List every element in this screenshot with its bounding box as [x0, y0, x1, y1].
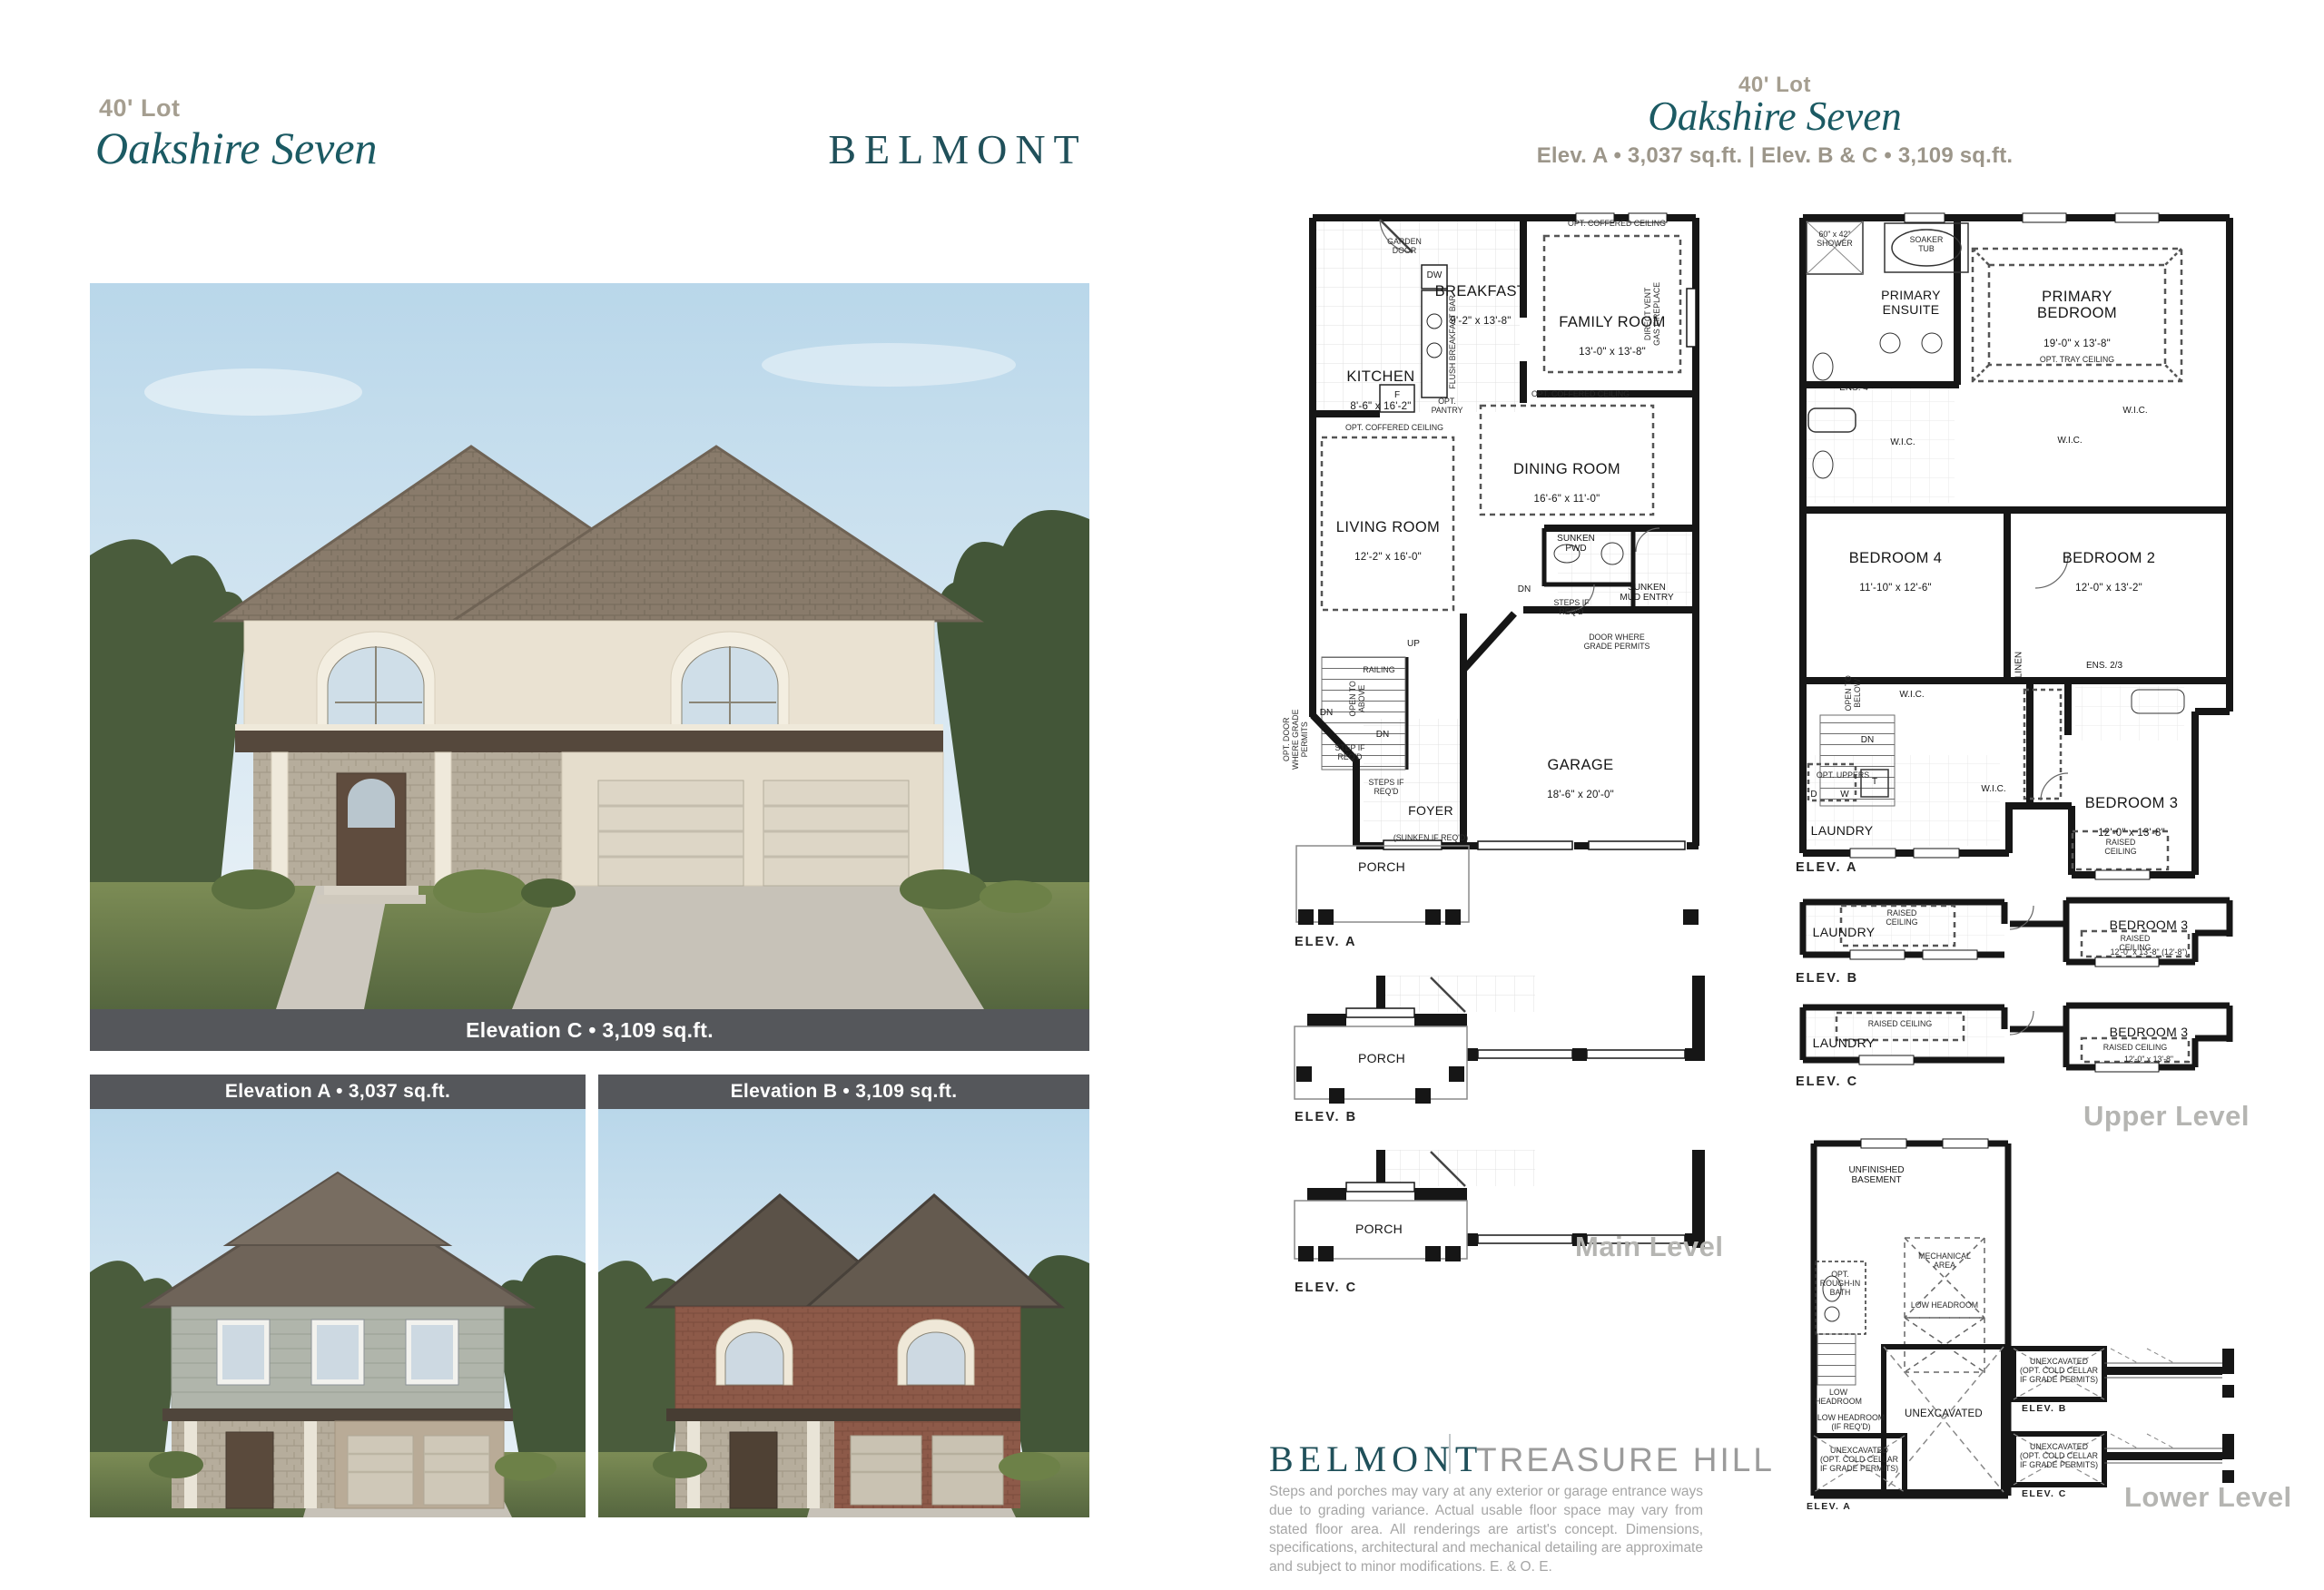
main-elev-b-label: ELEV. B [1295, 1110, 1357, 1124]
elevation-c-rendering: Elevation C • 3,109 sq.ft. [90, 283, 1089, 1051]
wic-label-4: W.I.C. [1885, 690, 1939, 700]
dn-label-1: DN [1512, 584, 1536, 594]
disclaimer-text: Steps and porches may vary at any exteri… [1269, 1483, 1703, 1577]
bedroom3-name: BEDROOM 3 [2059, 795, 2204, 811]
bedroom4-name: BEDROOM 4 [1827, 550, 1964, 566]
upper-elev-c-label: ELEV. C [1796, 1075, 1858, 1089]
open-above-label: OPEN TO ABOVE [1349, 672, 1367, 726]
room-bedroom-2: BEDROOM 2 12'-0" x 13'-2" [2036, 534, 2181, 611]
elevation-c-illustration [90, 283, 1089, 1009]
coffered-living-label: OPT. COFFERED CEILING [1335, 424, 1453, 433]
main-level-elev-b-variant: PORCH ELEV. B [1285, 976, 1744, 1125]
wic-label-2: W.I.C. [2043, 436, 2097, 446]
lower-elev-a-label: ELEV. A [1807, 1501, 1851, 1512]
sunken-mud-label: SUNKEN MUD ENTRY [1601, 583, 1692, 603]
upper-elev-b-label: ELEV. B [1796, 971, 1858, 986]
bedroom3-c-name: BEDROOM 3 [2068, 1026, 2230, 1040]
fridge-label: F [1380, 390, 1414, 400]
elevation-specs: Elev. A • 3,037 sq.ft. | Elev. B & C • 3… [1525, 143, 2024, 169]
bedroom3-c-dims: 12'-0" x 13'-8" [2068, 1055, 2230, 1065]
wic-label-5: W.I.C. [1966, 784, 2021, 794]
elevation-b-illustration [598, 1109, 1089, 1517]
raised-ceiling-b2: RAISED CEILING [2102, 935, 2168, 953]
porch-label-a: PORCH [1338, 860, 1425, 875]
model-name-left: Oakshire Seven [95, 122, 378, 174]
upper-level-elev-c-variant: RAISED CEILING LAUNDRY BEDROOM 3 12'-0" … [1796, 998, 2238, 1089]
hero-caption: Elevation C • 3,109 sq.ft. [90, 1009, 1089, 1051]
kitchen-dims: 8'-6" x 16'-2" [1326, 401, 1435, 413]
lower-elev-b-label: ELEV. B [2022, 1403, 2067, 1414]
model-name-right: Oakshire Seven [1593, 93, 1956, 140]
porch-label-b: PORCH [1338, 1052, 1425, 1066]
lot-size-label-left: 40' Lot [99, 94, 180, 123]
footer-treasurehill-logo: TREASURE HILL [1476, 1441, 1775, 1479]
foyer-note: (SUNKEN IF REQ'D) [1385, 834, 1476, 843]
sunken-pwd-label: SUNKEN PWD [1547, 534, 1605, 554]
footer-logo-divider [1449, 1434, 1451, 1474]
upper-elev-a-label: ELEV. A [1796, 860, 1858, 875]
main-level-elev-c-variant: PORCH ELEV. C [1285, 1150, 1744, 1295]
foyer-name: FOYER [1385, 804, 1476, 819]
ens23-label: ENS. 2/3 [2068, 661, 2141, 671]
cold-cellar-b-label: UNEXCAVATED (OPT. COLD CELLAR IF GRADE P… [2016, 1358, 2102, 1385]
footer-belmont-logo: BELMONT [1269, 1438, 1482, 1480]
main-elev-a-label: ELEV. A [1295, 935, 1357, 949]
laundry-label-c: LAUNDRY [1803, 1036, 1885, 1051]
low-headroom-label-2: LOW HEADROOM [1807, 1389, 1870, 1407]
raised-ceiling-a: RAISED CEILING [2084, 839, 2157, 857]
linen-label: LINEN [2014, 643, 2024, 687]
breakfast-name: BREAKFAST [1426, 283, 1535, 299]
lower-level-elev-b-variant: UNEXCAVATED (OPT. COLD CELLAR IF GRADE P… [2011, 1345, 2238, 1418]
step-if-reqd-label: STEP IF REQ'D [1324, 744, 1376, 762]
living-dims: 12'-2" x 16'-0" [1320, 552, 1456, 564]
porch-label-c: PORCH [1335, 1222, 1423, 1237]
living-name: LIVING ROOM [1320, 519, 1456, 535]
lower-elev-c-label: ELEV. C [2022, 1488, 2067, 1499]
primary-bedroom-name: PRIMARY BEDROOM [2000, 289, 2154, 322]
upper-level-plan: 60" x 42" SHOWER SOAKER TUB PRIMARY ENSU… [1796, 211, 2238, 882]
dn-label-3: DN [1371, 730, 1394, 740]
upper-dn-label: DN [1856, 735, 1879, 745]
breakfast-dims: 9'-2" x 13'-8" [1426, 316, 1535, 328]
main-elev-c-label: ELEV. C [1295, 1281, 1357, 1295]
thumb-a-caption: Elevation A • 3,037 sq.ft. [90, 1075, 586, 1109]
coffered-dining-label: OPT. COFFERED CEILING [1526, 390, 1635, 399]
room-garage: GARAGE 18'-6" x 20'-0" [1508, 741, 1653, 818]
door-grade-label: DOOR WHERE GRADE PERMITS [1571, 633, 1662, 652]
low-headroom-label-1: LOW HEADROOM [1908, 1301, 1981, 1310]
upper-level-elev-b-variant: RAISED CEILING LAUNDRY BEDROOM 3 12'-0" … [1796, 897, 2238, 987]
room-dining: DINING ROOM 16'-6" x 11'-0" [1494, 445, 1640, 522]
dryer-label: D [1805, 790, 1823, 800]
main-elev-b-walls [1285, 976, 1744, 1125]
elevation-b-rendering: Elevation B • 3,109 sq.ft. [598, 1075, 1089, 1517]
low-headroom-req-label: LOW HEADROOM (IF REQ'D) [1816, 1414, 1886, 1432]
unexcavated-main-label: UNEXCAVATED [1894, 1408, 1994, 1420]
dn-label-2: DN [1315, 708, 1338, 718]
open-below-label: OPEN TO BELOW [1845, 666, 1863, 721]
bedroom2-name: BEDROOM 2 [2036, 550, 2181, 566]
room-primary-bedroom: PRIMARY BEDROOM 19'-0" x 13'-8" [2000, 272, 2154, 367]
room-breakfast: BREAKFAST 9'-2" x 13'-8" [1426, 267, 1535, 344]
garage-dims: 18'-6" x 20'-0" [1508, 790, 1653, 801]
opt-pantry-label: OPT. PANTRY [1420, 397, 1474, 416]
garden-door-label: GARDEN DOOR [1373, 238, 1436, 256]
dining-dims: 16'-6" x 11'-0" [1494, 494, 1640, 505]
ens4-label: ENS. 4 [1827, 383, 1881, 393]
fireplace-label: DIRECT VENT GAS FIREPLACE [1644, 273, 1662, 355]
raised-ceiling-b1: RAISED CEILING [1870, 909, 1934, 927]
bedroom4-dims: 11'-10" x 12'-6" [1827, 583, 1964, 594]
elevation-a-illustration [90, 1109, 586, 1517]
unfinished-basement-label: UNFINISHED BASEMENT [1817, 1165, 1935, 1185]
thumb-b-caption: Elevation B • 3,109 sq.ft. [598, 1075, 1089, 1109]
belmont-logo: BELMONT [817, 125, 1098, 173]
soaker-tub-label: SOAKER TUB [1897, 236, 1955, 254]
mechanical-label: MECHANICAL AREA [1908, 1252, 1981, 1271]
upper-level-title: Upper Level [2083, 1100, 2250, 1133]
room-foyer: FOYER (SUNKEN IF REQ'D) [1385, 788, 1476, 859]
brochure-page: 40' Lot Oakshire Seven BELMONT [0, 0, 2324, 1590]
garage-name: GARAGE [1508, 757, 1653, 773]
laundry-label-a: LAUNDRY [1801, 824, 1883, 839]
wic-label-3: W.I.C. [2108, 406, 2162, 416]
dining-name: DINING ROOM [1494, 461, 1640, 477]
room-living: LIVING ROOM 12'-2" x 16'-0" [1320, 503, 1456, 580]
bedroom2-dims: 12'-0" x 13'-2" [2036, 583, 2181, 594]
wic-label-1: W.I.C. [1876, 437, 1930, 447]
room-bedroom-4: BEDROOM 4 11'-10" x 12'-6" [1827, 534, 1964, 611]
lower-level-title: Lower Level [2124, 1481, 2292, 1514]
tub-label: T [1861, 777, 1888, 787]
bedroom3-b-name: BEDROOM 3 [2068, 918, 2230, 933]
elevation-a-rendering: Elevation A • 3,037 sq.ft. [90, 1075, 586, 1517]
shower-label: 60" x 42" SHOWER [1805, 231, 1865, 249]
main-level-title: Main Level [1575, 1231, 1724, 1263]
up-label: UP [1402, 639, 1425, 649]
opt-door-grade-label: OPT. DOOR WHERE GRADE PERMITS [1283, 703, 1310, 776]
main-level-plan: GARDEN DOOR DW FLUSH BREAKFAST BAR BREAK… [1285, 211, 1744, 964]
raised-ceiling-c1: RAISED CEILING [1848, 1020, 1952, 1029]
raised-ceiling-c2: RAISED CEILING [2095, 1044, 2175, 1053]
primary-bedroom-dims: 19'-0" x 13'-8" [2000, 339, 2154, 350]
kitchen-name: KITCHEN [1326, 368, 1435, 385]
primary-ensuite-label: PRIMARY ENSUITE [1852, 289, 1970, 317]
rough-in-bath-label: OPT. ROUGH-IN BATH [1814, 1271, 1866, 1298]
laundry-label-b: LAUNDRY [1803, 926, 1885, 940]
steps-if-reqd-label-1: STEPS IF REQ'D [1545, 599, 1598, 617]
coffered-family-label: OPT. COFFERED CEILING [1558, 220, 1676, 229]
cold-cellar-a-label: UNEXCAVATED (OPT. COLD CELLAR IF GRADE P… [1816, 1447, 1903, 1474]
opt-tray-label: OPT. TRAY CEILING [2023, 356, 2132, 365]
cold-cellar-c-label: UNEXCAVATED (OPT. COLD CELLAR IF GRADE P… [2016, 1443, 2102, 1470]
washer-label: W [1836, 790, 1854, 800]
